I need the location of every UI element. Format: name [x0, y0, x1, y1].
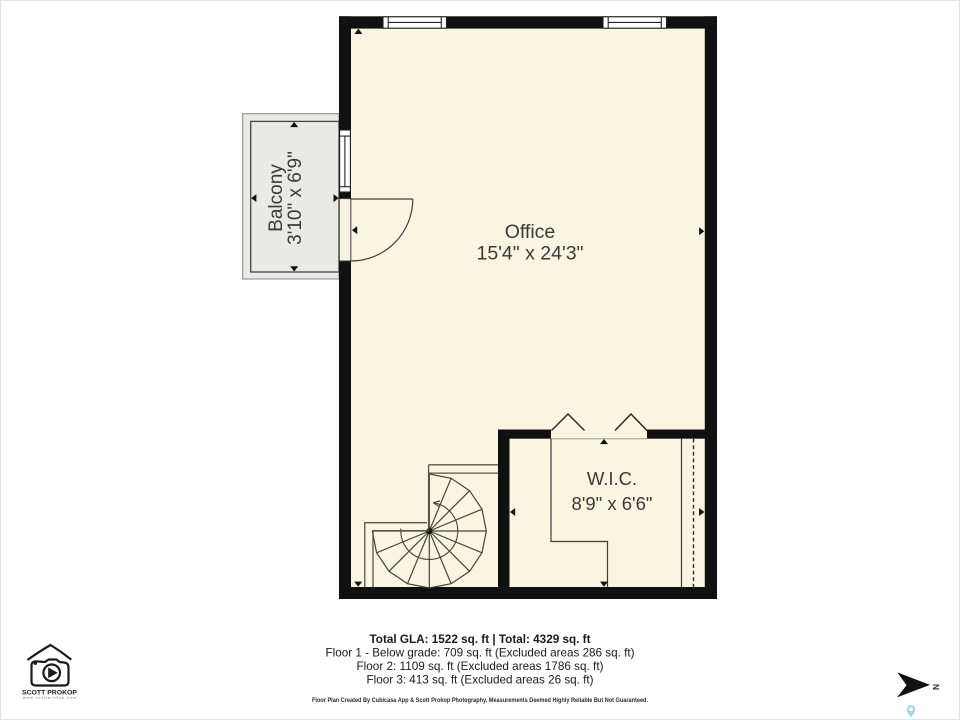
svg-text:W.I.C.: W.I.C. [587, 468, 637, 489]
svg-text:N: N [931, 684, 941, 690]
svg-text:Floor 2: 1109 sq. ft (Excluded: Floor 2: 1109 sq. ft (Excluded areas 178… [357, 659, 604, 673]
svg-text:w w w . s c o t t p r o k o p: w w w . s c o t t p r o k o p . c o m [23, 696, 77, 700]
svg-text:15'4" x 24'3": 15'4" x 24'3" [477, 243, 584, 265]
svg-text:8'9" x 6'6": 8'9" x 6'6" [572, 493, 653, 514]
svg-text:Total GLA: 1522 sq. ft | Total: Total GLA: 1522 sq. ft | Total: 4329 sq.… [370, 632, 591, 646]
svg-text:Floor 3: 413 sq. ft (Excluded: Floor 3: 413 sq. ft (Excluded areas 26 s… [367, 673, 594, 687]
svg-text:Office: Office [505, 221, 556, 243]
svg-text:Balcony: Balcony [266, 164, 287, 232]
svg-text:Floor Plan Created By Cubicasa: Floor Plan Created By Cubicasa App & Sco… [312, 697, 648, 704]
svg-text:3'10" x 6'9": 3'10" x 6'9" [285, 151, 306, 245]
svg-text:Floor 1 - Below grade: 709 sq.: Floor 1 - Below grade: 709 sq. ft (Exclu… [326, 645, 635, 659]
